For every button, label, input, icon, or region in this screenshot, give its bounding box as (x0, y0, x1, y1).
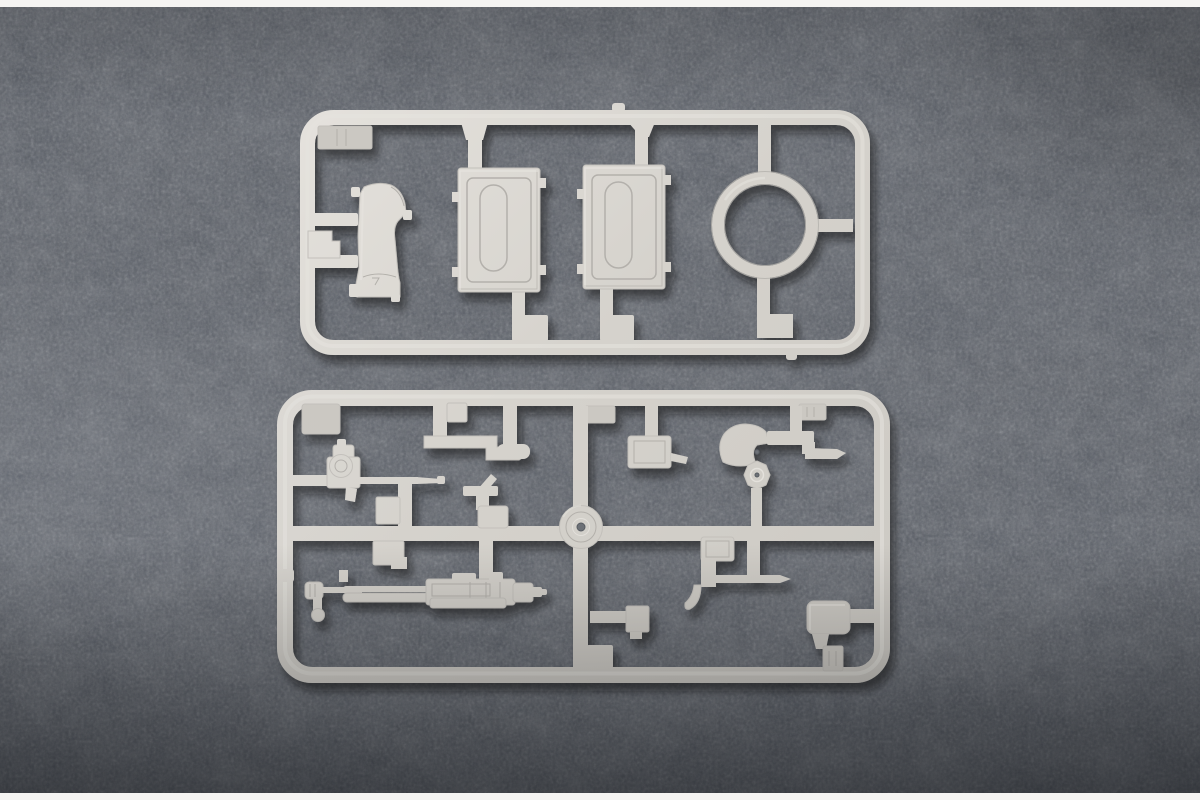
white-strip-bottom (0, 793, 1200, 800)
ridged-tab-bottom (823, 646, 843, 671)
large-corner-tab (302, 404, 340, 434)
small-tab-center (585, 406, 615, 423)
ridged-mounting-tab (318, 126, 372, 149)
photo-canvas (0, 0, 1200, 800)
sprue-photo (0, 0, 1200, 800)
white-strip-top (0, 0, 1200, 7)
ridged-tab-top (799, 404, 826, 420)
